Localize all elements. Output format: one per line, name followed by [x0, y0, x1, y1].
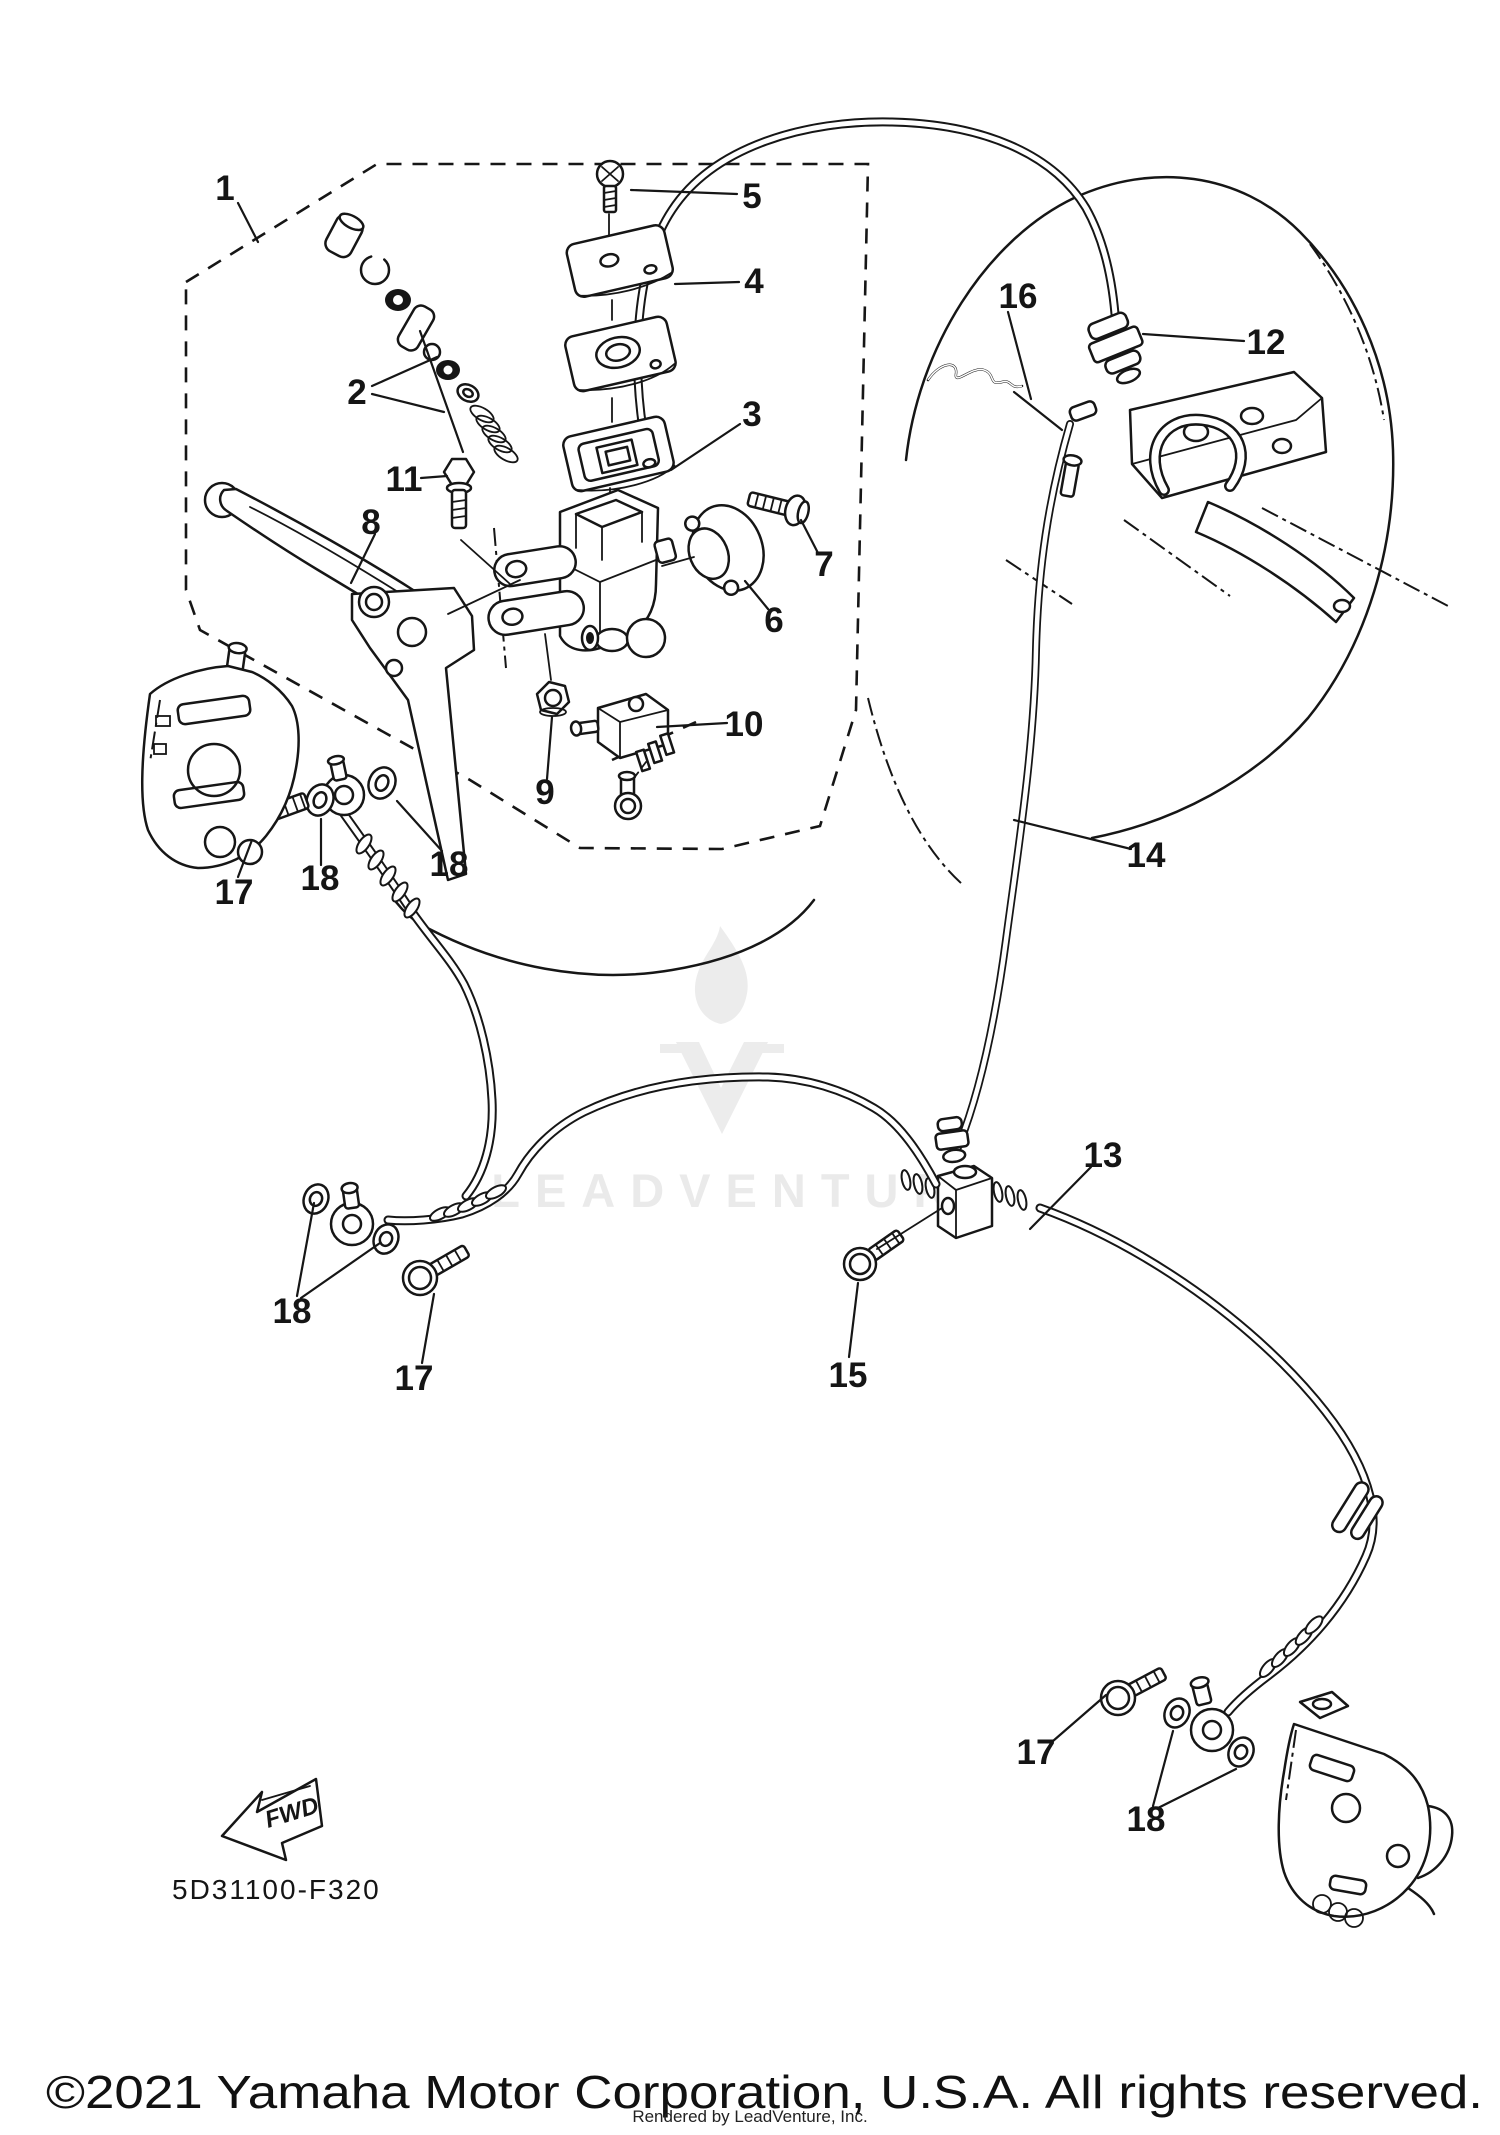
- hose-clip-16: [928, 365, 1022, 387]
- switch-screw: [615, 772, 641, 819]
- clamp-6: [675, 494, 776, 604]
- union-bolt-17b: [403, 1245, 470, 1295]
- master-cylinder-body: [486, 490, 677, 657]
- fwd-arrow: FWD: [222, 1779, 322, 1860]
- callout-5: 5: [742, 177, 761, 216]
- piston-kit-parts: [322, 210, 520, 466]
- callout-3: 3: [742, 395, 761, 434]
- callout-layer: 1234567891011121314151617171718181818: [215, 169, 1286, 1839]
- brake-hose-13: [1040, 1208, 1387, 1751]
- reservoir-seal-3: [561, 415, 676, 499]
- callout-2: 2: [347, 373, 366, 412]
- reservoir-diaphragm: [563, 315, 678, 397]
- callout-18d: 18: [1127, 1800, 1166, 1839]
- rendered-by-line: Rendered by LeadVenture, Inc.: [632, 2107, 867, 2126]
- callout-18a: 18: [301, 859, 340, 898]
- callout-6: 6: [764, 601, 783, 640]
- callout-1: 1: [215, 169, 234, 208]
- callout-18b: 18: [430, 845, 469, 884]
- front-left-caliper: [142, 642, 298, 868]
- front-right-caliper: [1279, 1692, 1453, 1927]
- nut-9: [537, 682, 569, 716]
- callout-9: 9: [535, 773, 554, 812]
- diagram-canvas: LEADVENTURE: [0, 0, 1500, 2135]
- callout-17b: 17: [395, 1359, 434, 1398]
- brake-hose-14: [933, 424, 1070, 1164]
- left-caliper-hose: [324, 755, 492, 1196]
- union-bolt-17c: [1101, 1667, 1167, 1715]
- brake-switch-10: [570, 694, 676, 819]
- part-code: 5D31100-F320: [172, 1874, 381, 1905]
- pivot-bolt-11: [444, 459, 474, 528]
- callout-7: 7: [814, 545, 833, 584]
- callout-16: 16: [999, 277, 1038, 316]
- callout-12: 12: [1247, 323, 1286, 362]
- callout-18c: 18: [273, 1292, 312, 1331]
- hose-fitting-12: [1081, 309, 1155, 392]
- brake-hose-left-branch: [331, 1077, 936, 1245]
- callout-17a: 17: [215, 873, 254, 912]
- callout-10: 10: [725, 705, 764, 744]
- callout-15: 15: [829, 1356, 868, 1395]
- parts-diagram-page: LEADVENTURE: [0, 0, 1500, 2135]
- callout-11: 11: [386, 460, 423, 499]
- callout-17c: 17: [1017, 1733, 1056, 1772]
- reservoir-cap-4: [565, 223, 675, 302]
- callout-14: 14: [1127, 836, 1166, 875]
- callout-4: 4: [744, 262, 764, 301]
- handlebar-bracket: [1057, 372, 1354, 622]
- reservoir-cap-stack: [561, 161, 678, 506]
- upper-brake-hose: [638, 122, 1155, 448]
- callout-8: 8: [361, 503, 380, 542]
- callout-13: 13: [1084, 1136, 1123, 1175]
